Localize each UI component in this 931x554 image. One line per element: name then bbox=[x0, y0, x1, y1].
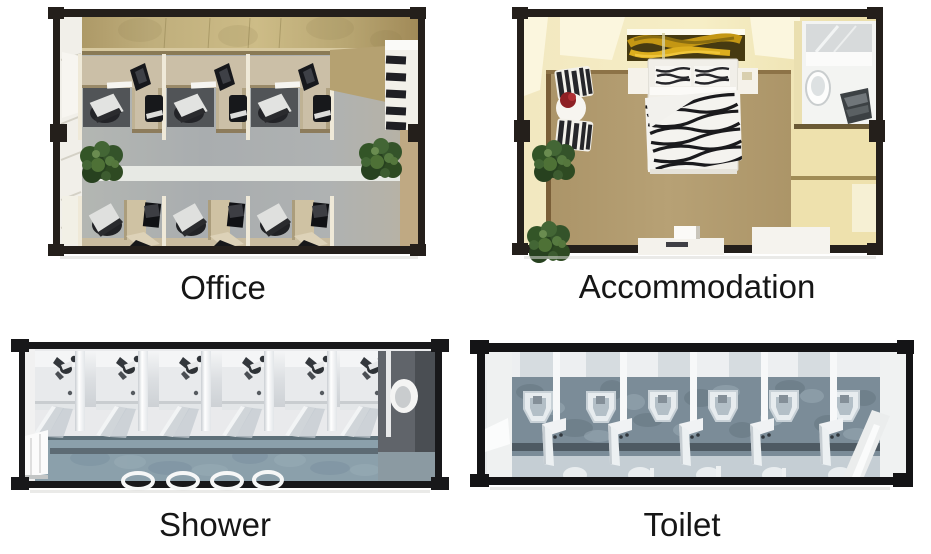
svg-text:Shower: Shower bbox=[159, 506, 271, 543]
svg-text:Office: Office bbox=[180, 269, 266, 306]
svg-text:Toilet: Toilet bbox=[643, 506, 720, 543]
svg-text:Accommodation: Accommodation bbox=[579, 268, 816, 305]
